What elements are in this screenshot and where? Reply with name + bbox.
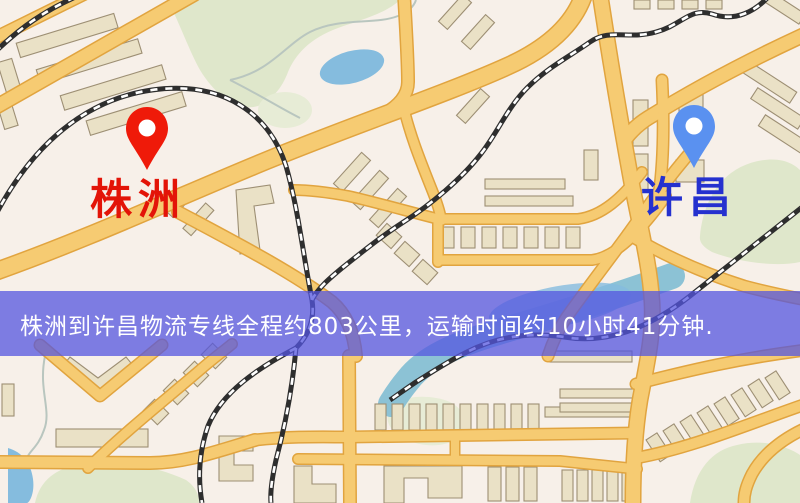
- origin-pin-icon[interactable]: [124, 106, 170, 172]
- destination-city-label: 许昌: [641, 177, 737, 219]
- destination-pin-icon[interactable]: [671, 104, 717, 170]
- origin-city-label: 株洲: [90, 179, 186, 221]
- map-graphic: [0, 0, 800, 503]
- map-canvas[interactable]: 株洲 许昌 株洲到许昌物流专线全程约803公里，运输时间约10小时41分钟.: [0, 0, 800, 503]
- route-info-banner: 株洲到许昌物流专线全程约803公里，运输时间约10小时41分钟.: [0, 291, 800, 356]
- route-info-text: 株洲到许昌物流专线全程约803公里，运输时间约10小时41分钟.: [20, 307, 714, 341]
